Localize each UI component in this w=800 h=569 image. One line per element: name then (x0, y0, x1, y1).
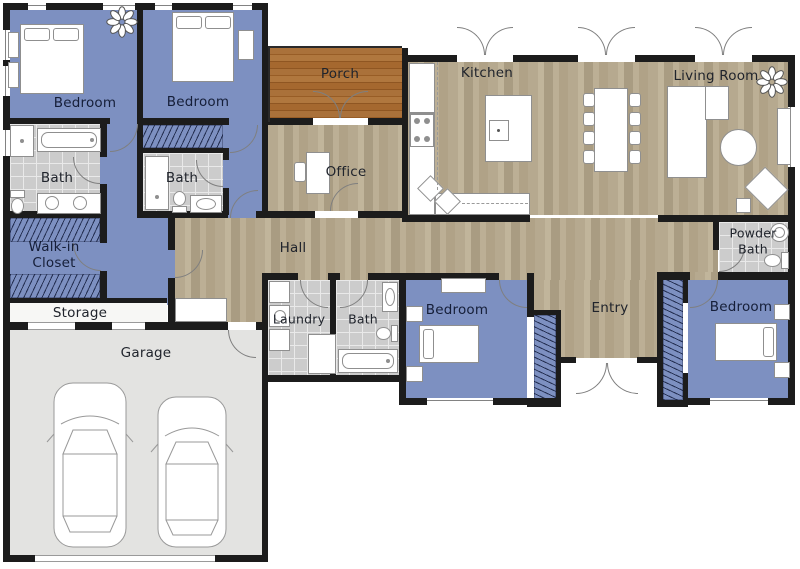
cabinet-line (437, 62, 438, 190)
sink (196, 198, 216, 210)
window (155, 3, 172, 10)
hall-floor (175, 218, 718, 280)
powder-corridor-floor (658, 222, 713, 272)
wall (527, 400, 561, 407)
room-label-bedroom: Bedroom (167, 94, 229, 110)
dining-chair (583, 93, 595, 107)
floor-plan: Bedroom Bedroom Bath Bath Walk-in Closet… (0, 0, 800, 569)
room-label-kitchen: Kitchen (461, 65, 513, 81)
wall (223, 211, 228, 218)
plant-icon (106, 6, 138, 38)
ottoman (736, 198, 751, 213)
room-label-bath: Bath (41, 170, 73, 186)
door-arc (578, 27, 606, 55)
dining-table (594, 88, 628, 172)
wall (137, 118, 229, 125)
room-label-bedroom: Bedroom (426, 302, 488, 318)
dining-chair (629, 131, 641, 145)
pillow (53, 28, 79, 41)
window (233, 3, 252, 10)
wall (637, 357, 658, 363)
porch-edge (268, 46, 402, 48)
shower-drain (155, 195, 159, 199)
wall (788, 55, 795, 107)
garage-door (35, 555, 215, 562)
wall (262, 273, 298, 280)
door-arc (606, 27, 635, 55)
cabinet-line (462, 203, 528, 204)
room-label-powder-bath: Bath (738, 242, 768, 257)
wall (137, 118, 143, 215)
window (710, 398, 768, 405)
wall (75, 322, 112, 330)
nightstand (406, 366, 423, 382)
storage-door (28, 322, 75, 330)
laundry-counter (308, 334, 336, 374)
room-label-hall: Hall (280, 240, 307, 256)
window (28, 3, 46, 10)
dining-chair (629, 93, 641, 107)
shower-drain (20, 139, 24, 143)
dresser (238, 30, 254, 60)
dining-chair (629, 112, 641, 126)
bathtub-basin (41, 132, 97, 148)
wall (718, 272, 795, 280)
car (46, 382, 134, 548)
room-label-office: Office (326, 164, 367, 180)
wall (262, 375, 405, 382)
room-label-bath: Bath (166, 170, 198, 186)
nightstand (8, 32, 19, 58)
toilet-tank (10, 190, 25, 198)
toilet-tank (391, 325, 398, 342)
window (427, 398, 493, 405)
wall (100, 118, 107, 157)
pillow (763, 327, 774, 357)
window (3, 130, 10, 156)
sink (385, 288, 395, 306)
wall (683, 398, 710, 405)
wall (168, 218, 175, 250)
room-label-entry: Entry (592, 300, 629, 316)
nightstand (774, 304, 790, 320)
room-label-porch: Porch (321, 66, 359, 82)
door-arc (695, 27, 723, 55)
storage-door (112, 322, 145, 330)
nightstand (406, 306, 423, 322)
room-label-bedroom: Bedroom (710, 299, 772, 315)
room-label-garage: Garage (121, 345, 172, 361)
dining-chair (583, 112, 595, 126)
door-arc (723, 27, 752, 55)
island-dot (497, 129, 500, 132)
dresser (8, 62, 19, 88)
wall (358, 211, 408, 218)
wall (657, 273, 663, 407)
wall (556, 357, 576, 363)
pillow (423, 329, 434, 359)
plant-icon (756, 66, 788, 98)
car (150, 396, 234, 548)
toilet-bowl (173, 191, 186, 206)
wall (399, 398, 427, 405)
wall (142, 148, 223, 153)
nightstand (774, 362, 790, 378)
entry-closet-right (663, 275, 683, 400)
wall (268, 118, 313, 125)
dining-chair (583, 131, 595, 145)
dining-chair (629, 150, 641, 164)
burner (424, 136, 430, 142)
room-label-laundry: Laundry (273, 312, 325, 327)
pillow (176, 16, 202, 29)
tub-drain (386, 359, 390, 363)
wall (145, 322, 228, 330)
sink (73, 196, 87, 210)
wall (513, 55, 578, 62)
tub-drain (90, 138, 94, 142)
porch-edge (268, 46, 270, 122)
wall (657, 272, 690, 280)
wall (223, 148, 229, 160)
hall-closet (175, 298, 227, 322)
sofa (667, 86, 707, 178)
pillow (24, 28, 50, 41)
walk-in-closet-rail (10, 274, 100, 298)
toilet-tank (172, 206, 187, 213)
entry-door-arc (607, 363, 638, 394)
coffee-table (720, 129, 757, 166)
pillow (205, 16, 231, 29)
wall (658, 215, 795, 222)
toilet-tank (781, 252, 789, 269)
laundry-cabinet (269, 329, 290, 351)
wall (100, 218, 107, 243)
wall (402, 48, 408, 222)
wall (768, 398, 795, 405)
room-label-walk-in-closet: Closet (32, 255, 75, 271)
closet-hatch (142, 125, 223, 148)
room-label-walk-in-closet: Walk-in (29, 239, 80, 255)
door-arc (485, 27, 513, 55)
entry-closet-left (534, 315, 556, 400)
wall (683, 373, 688, 400)
fridge-cabinet (409, 63, 435, 113)
room-label-storage: Storage (53, 305, 107, 321)
burner (414, 118, 420, 124)
room-label-bedroom: Bedroom (54, 95, 116, 111)
toilet-bowl (11, 198, 24, 214)
window-seat (777, 108, 791, 165)
wall (635, 55, 695, 62)
wall (402, 55, 457, 62)
toilet-bowl (376, 327, 391, 340)
wall (399, 273, 406, 405)
wall (262, 211, 315, 218)
wall (402, 215, 530, 222)
wall (3, 322, 28, 330)
entry-door-arc (576, 363, 607, 394)
room-label-bath: Bath (348, 312, 378, 327)
burner (414, 136, 420, 142)
office-chair (294, 162, 306, 182)
burner (424, 118, 430, 124)
wall (3, 298, 167, 303)
dresser (441, 278, 486, 293)
room-label-living-room: Living Room (673, 68, 758, 84)
wall (3, 118, 110, 124)
wall (256, 322, 268, 330)
wall (262, 273, 268, 562)
wall (328, 273, 340, 280)
sink (45, 196, 59, 210)
room-label-powder-bath: Powder (730, 226, 777, 241)
door-arc (457, 27, 485, 55)
sofa-chaise (705, 86, 729, 120)
washer (269, 281, 290, 303)
dining-chair (583, 150, 595, 164)
